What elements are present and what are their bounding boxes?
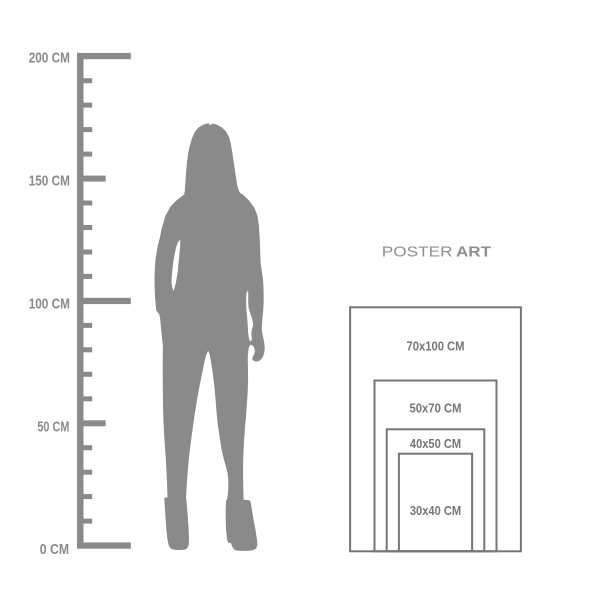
svg-text:150 CM: 150 CM	[29, 172, 70, 189]
svg-text:200 CM: 200 CM	[29, 49, 70, 66]
svg-text:50x70 CM: 50x70 CM	[410, 401, 462, 416]
svg-text:70x100 CM: 70x100 CM	[407, 339, 465, 354]
svg-text:0 CM: 0 CM	[40, 541, 69, 558]
svg-text:50 CM: 50 CM	[37, 418, 69, 435]
svg-text:ART: ART	[456, 244, 491, 260]
svg-text:40x50 CM: 40x50 CM	[410, 436, 461, 451]
svg-text:100 CM: 100 CM	[29, 295, 70, 312]
svg-text:POSTER: POSTER	[382, 244, 453, 260]
svg-text:30x40 CM: 30x40 CM	[410, 503, 461, 518]
